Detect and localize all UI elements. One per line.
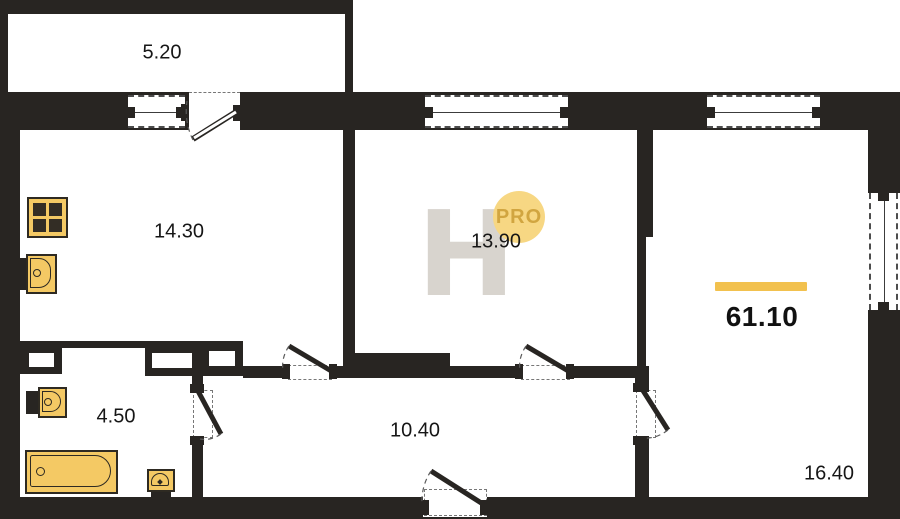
wall-room-living-divider-upper xyxy=(637,130,653,237)
total-area-label: 61.10 xyxy=(726,301,799,333)
balcony-door-hinge xyxy=(233,105,240,121)
stove-burner xyxy=(49,203,62,216)
kitchen-area-label: 14.30 xyxy=(154,221,204,244)
floorplan-canvas: H PRO 5.20 14.30 13.90 4.50 10.40 16.40 … xyxy=(0,0,900,519)
wall-balcony-top xyxy=(0,0,353,14)
stove-burner xyxy=(49,219,62,232)
window-stop xyxy=(560,107,568,118)
kitchen-sink-drain xyxy=(33,269,41,277)
wall-living-left-bottom xyxy=(635,440,649,503)
living-area-label: 16.40 xyxy=(804,463,854,486)
window-stop xyxy=(425,107,433,118)
wall-right-upper xyxy=(868,97,900,193)
door-jamb xyxy=(633,383,649,392)
wall-balcony-left xyxy=(0,0,8,97)
door-jamb xyxy=(515,364,523,379)
door-jamb xyxy=(566,364,574,379)
room-area-label: 13.90 xyxy=(471,231,521,254)
balcony-area-label: 5.20 xyxy=(143,42,182,65)
room-door-frame xyxy=(521,365,570,380)
door-jamb xyxy=(190,384,204,393)
bathtub-drain xyxy=(36,467,45,476)
door-jamb xyxy=(633,436,649,445)
shaft-1-void xyxy=(29,353,54,367)
entrance-door-frame xyxy=(424,489,487,516)
shaft-3-void xyxy=(209,351,235,366)
door-jamb xyxy=(480,500,489,515)
wall-room-living-divider-lower xyxy=(637,237,646,367)
door-jamb xyxy=(329,364,337,379)
wall-left xyxy=(0,92,20,503)
door-jamb xyxy=(190,436,204,445)
window-glass-line xyxy=(710,112,817,114)
wall-bath-door-post xyxy=(192,341,203,390)
stove-burner xyxy=(33,203,46,216)
window-stop xyxy=(878,193,889,201)
window-glass-line xyxy=(428,112,565,114)
door-jamb xyxy=(282,364,290,379)
total-area-accent-bar xyxy=(715,282,807,291)
stove-icon xyxy=(27,197,68,238)
bathroom-door-frame xyxy=(193,390,213,438)
window-stop xyxy=(812,107,820,118)
bathtub-icon xyxy=(25,450,118,494)
toilet-icon xyxy=(38,387,67,418)
door-jamb xyxy=(420,500,429,515)
wall-right-lower xyxy=(868,310,900,519)
wall-kitchen-room-divider xyxy=(343,130,355,367)
toilet-tank xyxy=(26,391,38,414)
window-stop xyxy=(707,107,715,118)
wall-hall-top-2 xyxy=(332,366,520,378)
wall-bath-door-lower xyxy=(192,440,203,503)
wall-balcony-right xyxy=(345,0,353,97)
window-stop xyxy=(128,107,135,118)
toilet-flush xyxy=(44,398,52,406)
shaft-2-void xyxy=(152,353,192,368)
room-window xyxy=(425,95,568,128)
bath-sink-pedestal xyxy=(151,492,171,498)
window-stop xyxy=(878,302,889,310)
watermark-pro-text: PRO xyxy=(496,206,542,229)
bath-sink-icon xyxy=(147,469,175,492)
kitchen-sink-icon xyxy=(26,254,57,294)
living-door-frame xyxy=(636,390,656,438)
living-top-window xyxy=(707,95,820,128)
hallway-area-label: 10.40 xyxy=(390,420,440,443)
bathroom-area-label: 4.50 xyxy=(97,406,136,429)
stove-burner xyxy=(33,219,46,232)
kitchen-door-frame xyxy=(288,365,332,380)
window-glass-line xyxy=(884,196,886,307)
balcony-door-mullion xyxy=(181,104,189,121)
window-glass-line xyxy=(131,112,182,114)
wall-hall-top-1 xyxy=(243,366,287,378)
living-right-window xyxy=(869,193,898,310)
